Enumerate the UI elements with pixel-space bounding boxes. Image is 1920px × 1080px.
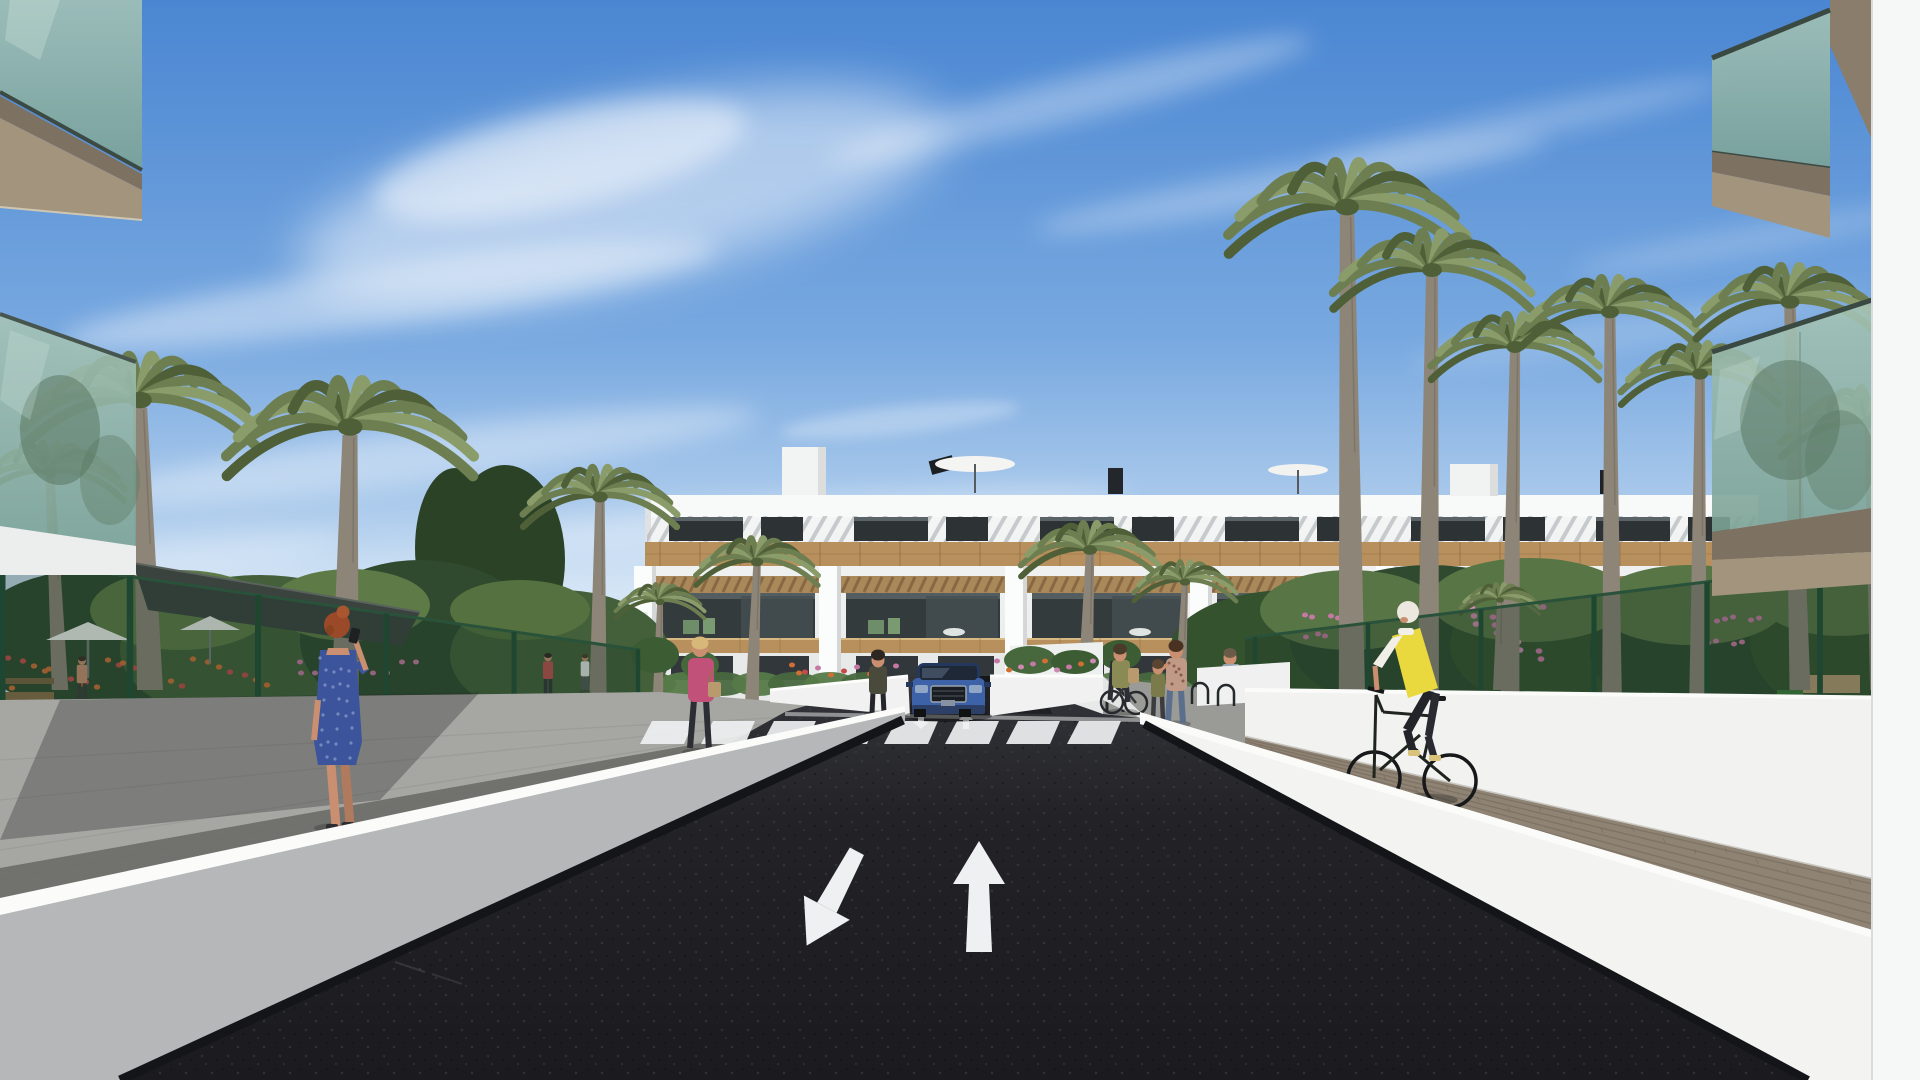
render-viewport <box>0 0 1920 1080</box>
scene-render <box>0 0 1920 1080</box>
